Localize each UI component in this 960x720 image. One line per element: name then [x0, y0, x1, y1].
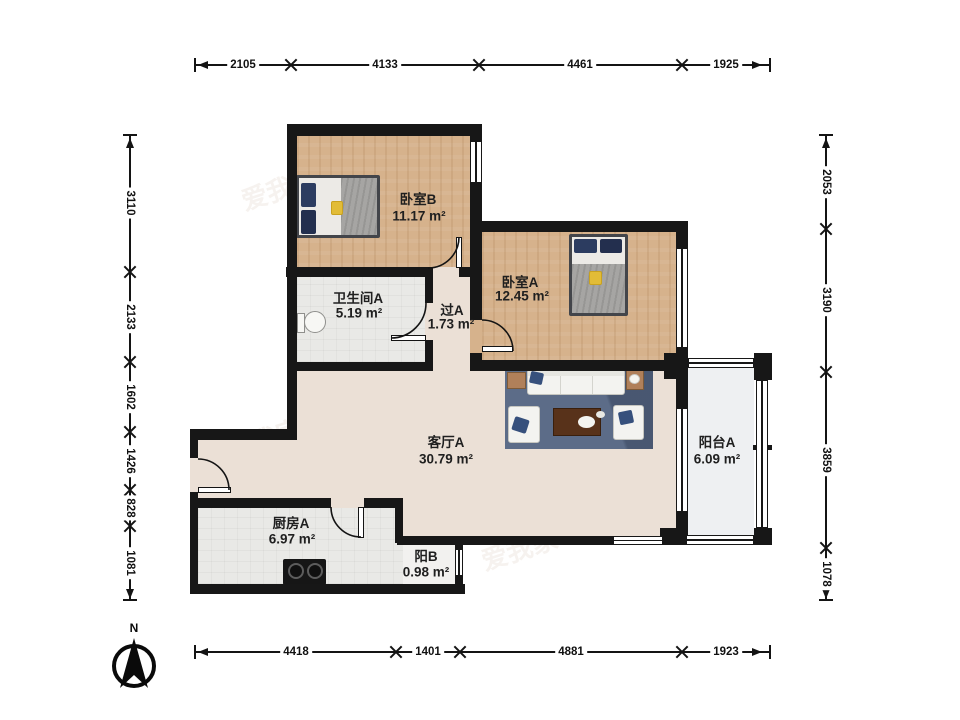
dimension-endbar	[819, 134, 833, 136]
door-arc	[482, 320, 513, 351]
dimension-endbar	[819, 599, 833, 601]
door-arc	[198, 459, 229, 490]
room-area-hallway-a: 1.73 m²	[428, 317, 475, 332]
door-arc	[331, 507, 361, 537]
dim-top-2: 4133	[369, 58, 401, 72]
dim-top-4: 1925	[710, 58, 742, 72]
dimension-arrow	[822, 138, 830, 148]
compass-north-label: N	[130, 621, 139, 635]
dimension-endbar	[194, 58, 196, 72]
room-label-kitchen-a: 厨房A	[273, 512, 310, 532]
dim-bottom-3: 4881	[555, 645, 587, 659]
dimension-endbar	[769, 58, 771, 72]
room-area-bedroom-b: 11.17 m²	[392, 209, 445, 224]
compass: N	[106, 616, 162, 700]
door-arcs	[0, 0, 960, 720]
dimension-tick	[451, 643, 469, 661]
dimension-endbar	[123, 599, 137, 601]
room-label-balcony-a: 阳台A	[699, 431, 736, 451]
room-area-bathroom-a: 5.19 m²	[336, 306, 383, 321]
dim-right-3: 3859	[819, 444, 833, 476]
dim-right-2: 3190	[819, 284, 833, 316]
dimension-endbar	[123, 134, 137, 136]
dim-left-5: 828	[123, 495, 137, 520]
dim-left-4: 1426	[123, 445, 137, 477]
room-label-bathroom-a: 卫生间A	[333, 287, 383, 307]
dim-left-3: 1602	[123, 381, 137, 413]
dimension-arrow	[198, 61, 208, 69]
room-area-balcony-a: 6.09 m²	[694, 452, 741, 467]
dimension-tick	[817, 363, 835, 381]
door-arc	[428, 237, 459, 268]
dimension-endbar	[194, 645, 196, 659]
dimension-tick	[817, 220, 835, 238]
dimension-tick	[121, 353, 139, 371]
dim-top-3: 4461	[564, 58, 596, 72]
dim-bottom-2: 1401	[412, 645, 444, 659]
room-area-balcony-b: 0.98 m²	[403, 565, 450, 580]
room-area-kitchen-a: 6.97 m²	[269, 532, 316, 547]
dimension-tick	[387, 643, 405, 661]
dimension-arrow	[126, 589, 134, 599]
dim-left-1: 3110	[123, 188, 137, 219]
dim-right-1: 2053	[819, 166, 833, 198]
dimension-arrow	[198, 648, 208, 656]
room-area-bedroom-a: 12.45 m²	[495, 289, 549, 304]
room-label-bedroom-b: 卧室B	[400, 188, 437, 208]
dim-top-1: 2105	[227, 58, 259, 72]
dimension-tick	[673, 643, 691, 661]
dimension-arrow	[126, 138, 134, 148]
floorplan-canvas: 爱我家 爱我家 爱我家 爱我家	[0, 0, 960, 720]
dimension-arrow	[822, 589, 830, 599]
dim-bottom-1: 4418	[280, 645, 312, 659]
dimension-tick	[282, 56, 300, 74]
dim-left-6: 1081	[123, 547, 137, 579]
door-arc	[391, 303, 426, 338]
dimension-endbar	[769, 645, 771, 659]
dim-right-4: 1078	[819, 558, 833, 590]
dim-left-2: 2133	[123, 301, 137, 333]
dimension-tick	[121, 423, 139, 441]
compass-needle	[120, 638, 148, 688]
dimension-arrow	[752, 648, 762, 656]
room-label-living-a: 客厅A	[428, 431, 465, 451]
dim-bottom-4: 1923	[710, 645, 742, 659]
dimension-tick	[121, 263, 139, 281]
dimension-tick	[470, 56, 488, 74]
room-area-living-a: 30.79 m²	[419, 452, 473, 467]
dimension-tick	[673, 56, 691, 74]
dimension-tick	[817, 539, 835, 557]
room-label-balcony-b: 阳B	[414, 545, 437, 565]
dimension-arrow	[752, 61, 762, 69]
